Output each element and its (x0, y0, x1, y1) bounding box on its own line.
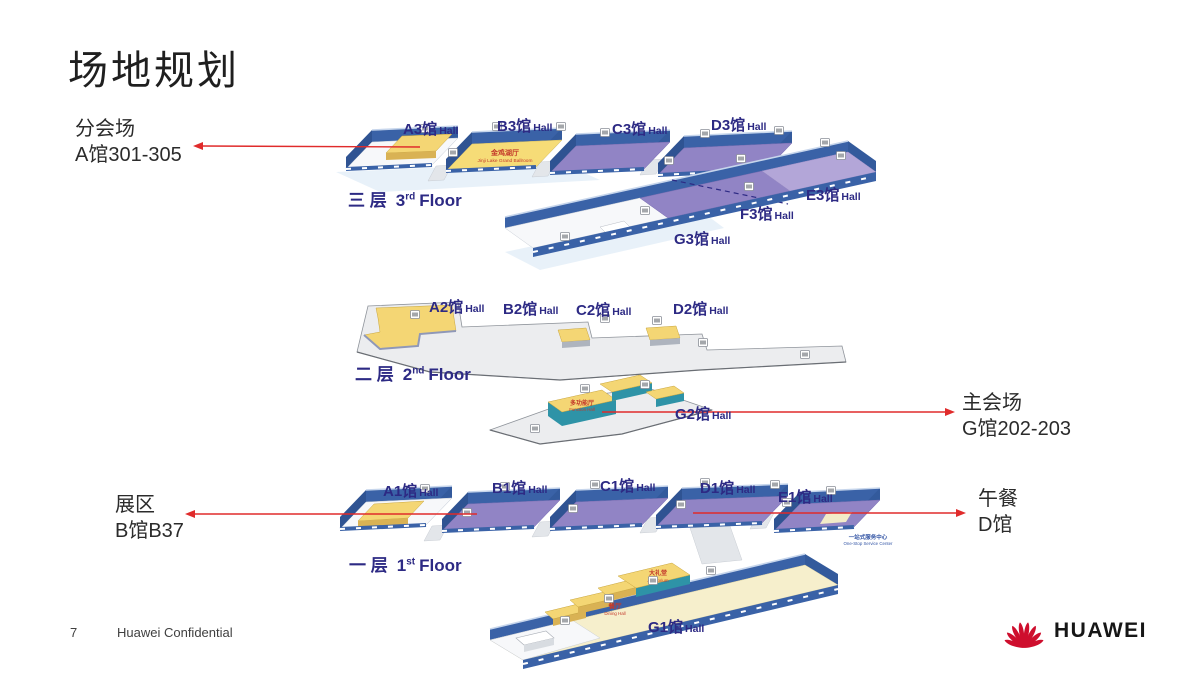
huawei-logo: HUAWEI (1002, 611, 1147, 651)
hall-label-f3: F3馆Hall (740, 203, 794, 224)
callout-main-venue-line1: 主会场 (962, 390, 1071, 416)
callout-main-venue-line2: G馆202-203 (962, 416, 1071, 442)
annotation-ballroom-cn: 金鸡湖厅 (490, 148, 519, 157)
hall-label-c1: C1馆Hall (600, 475, 655, 496)
hall-label-a3: A3馆Hall (403, 118, 458, 139)
annotation-function-hall-en: Function Hall (569, 407, 595, 412)
callout-exhibition-line2: B馆B37 (115, 518, 184, 544)
footer-page-number: 7 (70, 625, 77, 640)
floor-label-third: 三 层3rdFloor (348, 186, 462, 211)
annotation-service-center-en: One-Stop Service Center (843, 541, 893, 546)
hall-label-b1: B1馆Hall (492, 477, 547, 498)
hall-label-b2: B2馆Hall (503, 298, 558, 319)
callout-breakout-line1: 分会场 (75, 116, 182, 142)
callout-lunch-line1: 午餐 (978, 486, 1018, 512)
annotation-dining-en: Dining Hall (604, 611, 625, 616)
hall-d2-structure (646, 326, 680, 346)
hall-label-d3: D3馆Hall (711, 114, 766, 135)
floor-label-first: 一 层1stFloor (349, 551, 462, 576)
floor-label-second: 二 层2ndFloor (355, 360, 471, 385)
hall-label-g3: G3馆Hall (674, 228, 730, 249)
hall-label-c3: C3馆Hall (612, 118, 667, 139)
annotation-function-hall-cn: 多功能厅 (570, 399, 594, 407)
hall-label-a1: A1馆Hall (383, 480, 438, 501)
callout-lunch: 午餐 D馆 (978, 486, 1018, 538)
callout-lunch-line2: D馆 (978, 512, 1018, 538)
callout-breakout: 分会场 A馆301-305 (75, 116, 182, 168)
footer-confidential: Huawei Confidential (117, 625, 233, 640)
hall-c2-structure (558, 328, 590, 348)
callout-main-venue: 主会场 G馆202-203 (962, 390, 1071, 442)
venue-map: 金鸡湖厅 Jinji Lake Grand Ballroom (0, 0, 1200, 675)
hall-label-d1: D1馆Hall (700, 477, 755, 498)
annotation-auditorium-cn: 大礼堂 (649, 569, 667, 577)
annotation-ballroom-en: Jinji Lake Grand Ballroom (478, 158, 533, 164)
annotation-service-center-cn: 一站式服务中心 (849, 533, 888, 541)
hall-label-d2: D2馆Hall (673, 298, 728, 319)
huawei-wordmark: HUAWEI (1054, 619, 1147, 643)
hall-label-g2: G2馆Hall (675, 403, 731, 424)
hall-label-g1: G1馆Hall (648, 616, 704, 637)
callout-exhibition: 展区 B馆B37 (115, 492, 184, 544)
hall-label-e1: E1馆Hall (778, 486, 833, 507)
g1-wing-shape: 大礼堂 Auditorium 餐厅 Dining Hall (490, 554, 838, 669)
hall-label-e3: E3馆Hall (806, 184, 861, 205)
callout-breakout-line2: A馆301-305 (75, 142, 182, 168)
slide: 场地规划 (0, 0, 1200, 675)
huawei-flower-icon (1002, 611, 1046, 651)
hall-label-c2: C2馆Hall (576, 299, 631, 320)
hall-label-a2: A2馆Hall (429, 296, 484, 317)
hall-label-b3: B3馆Hall (497, 115, 552, 136)
callout-exhibition-line1: 展区 (115, 492, 184, 518)
